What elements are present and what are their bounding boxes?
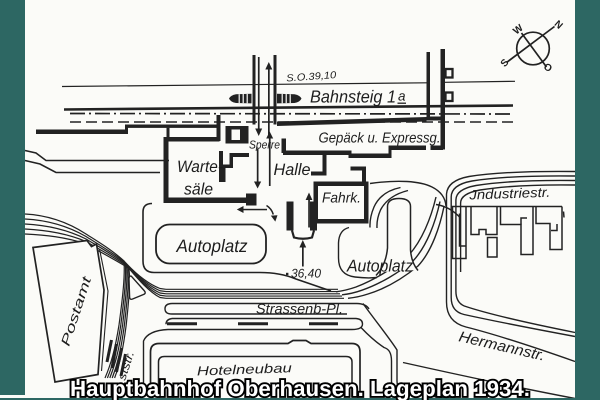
svg-text:Hauptbahnhof Oberhausen. Lagep: Hauptbahnhof Oberhausen. Lageplan 1934. [70,376,530,400]
svg-text:Autoplatz: Autoplatz [346,257,413,276]
svg-text:Warte-: Warte- [177,158,223,176]
svg-text:Bahnsteig 1: Bahnsteig 1 [310,87,396,107]
svg-text:Sperre: Sperre [249,140,280,152]
svg-text:säle: säle [184,181,213,199]
svg-text:36,40: 36,40 [291,267,321,281]
svg-text:Halle: Halle [274,161,311,179]
svg-text:Gepäck u. Expressg.: Gepäck u. Expressg. [319,131,441,147]
svg-text:Autoplatz: Autoplatz [176,236,248,256]
svg-text:Jndustriestr.: Jndustriestr. [468,185,551,203]
svg-text:a: a [398,89,406,104]
svg-text:Fahrk.: Fahrk. [322,191,361,207]
svg-text:Strassenb-Pl.: Strassenb-Pl. [256,301,343,317]
